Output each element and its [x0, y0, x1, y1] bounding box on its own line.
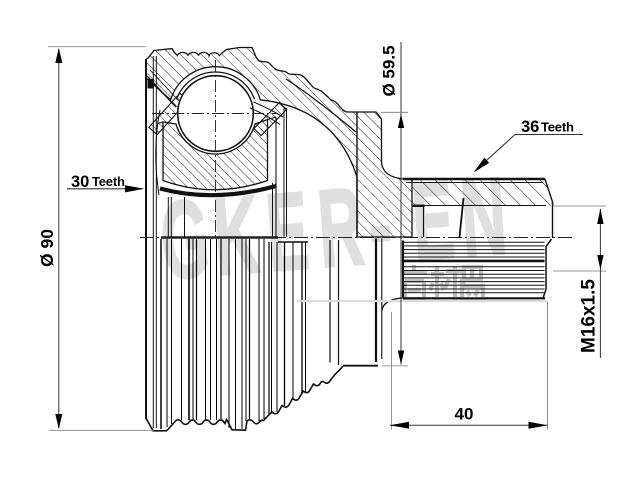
- svg-text:40: 40: [455, 405, 474, 424]
- svg-text:Teeth: Teeth: [541, 120, 574, 135]
- svg-text:Ø 90: Ø 90: [37, 229, 57, 267]
- svg-text:Teeth: Teeth: [92, 174, 125, 189]
- svg-text:Ø 59.5: Ø 59.5: [380, 45, 399, 96]
- svg-text:M16x1.5: M16x1.5: [579, 279, 600, 353]
- svg-text:36: 36: [521, 118, 539, 136]
- svg-text:30: 30: [71, 173, 89, 191]
